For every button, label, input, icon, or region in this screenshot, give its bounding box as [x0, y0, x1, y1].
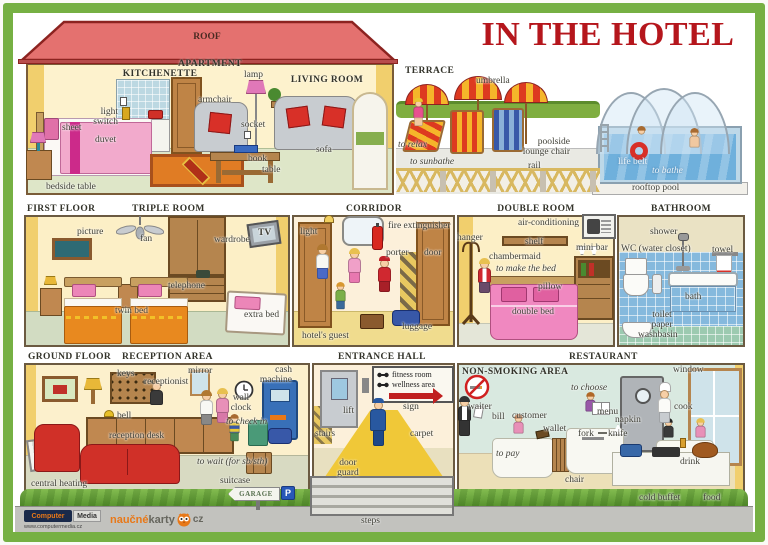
logo-karty-text: karty	[149, 514, 175, 526]
header-kitchenette: KITCHENETTE	[123, 69, 198, 79]
label-washbasin: washbasin	[638, 331, 678, 341]
arch-doorway	[352, 92, 388, 190]
twin-bed-1	[64, 282, 122, 344]
label-customer: customer	[512, 412, 547, 422]
shower-tap	[676, 266, 690, 271]
reception-picture	[42, 376, 78, 402]
toilet-bowl	[623, 274, 649, 296]
label-sofa: sofa	[316, 146, 332, 156]
poster-title: IN THE HOTEL	[468, 16, 748, 54]
bedside-lamp	[30, 132, 46, 143]
label-steps: steps	[361, 517, 380, 527]
label-wardrobe: wardrobe	[214, 236, 250, 246]
header-non-smoking: NON-SMOKING AREA	[462, 367, 568, 377]
guest-woman	[348, 248, 361, 283]
header-first-floor: FIRST FLOOR	[27, 204, 95, 214]
sofa-illustration	[274, 96, 358, 150]
door-guard-figure	[370, 398, 386, 446]
hotel-vocabulary-poster: IN THE HOTEL ROOF APARTMENT KITCHENETTE …	[0, 0, 768, 545]
logo-url: www.computermedia.cz	[24, 524, 82, 530]
label-shelf: shelf	[525, 238, 543, 248]
wellness-icon	[377, 382, 389, 388]
rail-illustration	[396, 168, 600, 192]
label-waiter: waiter	[468, 403, 492, 413]
kitchen-canister	[122, 107, 130, 120]
label-keys: keys	[117, 370, 134, 380]
toilet-tank	[625, 258, 647, 275]
sunbathing-guest	[413, 98, 423, 126]
media-logo-box: Media	[73, 510, 101, 522]
label-to-choose: to choose	[571, 384, 607, 394]
label-tv: TV	[258, 229, 271, 239]
label-knife: knife	[608, 430, 628, 440]
label-lift: lift	[343, 407, 354, 417]
computer-media-logo: Computer	[24, 510, 72, 522]
reception-lamp-base	[91, 390, 95, 404]
label-cold-buffet: cold buffet	[639, 494, 680, 504]
cooking-pot	[148, 110, 163, 119]
label-hotels-guest: hotel's guest	[302, 332, 349, 342]
pool-ladder	[600, 124, 609, 152]
bath-rim	[668, 272, 738, 287]
label-mini-bar: mini bar	[576, 244, 608, 254]
suitcase-corridor	[360, 314, 384, 329]
label-rooftop-pool: rooftop pool	[632, 184, 679, 194]
lift-illustration	[320, 370, 358, 428]
label-rail: rail	[528, 162, 541, 172]
label-wallet: wallet	[543, 425, 566, 435]
light-switch-icon	[120, 97, 127, 106]
owl-icon	[176, 512, 192, 527]
logo-computer-text: Computer	[31, 513, 64, 520]
label-cook: cook	[674, 403, 692, 413]
label-receptionist: receptionist	[144, 378, 188, 388]
bedside-table-illustration	[26, 150, 52, 180]
label-umbrella: umbrella	[476, 77, 510, 87]
coffee-table-top	[210, 152, 280, 161]
header-corridor: CORRIDOR	[346, 204, 402, 214]
porter-figure	[378, 256, 391, 292]
cook-figure	[658, 382, 671, 423]
label-lamp: lamp	[244, 71, 263, 81]
header-reception-area: RECEPTION AREA	[122, 352, 213, 362]
label-armchair: armchair	[198, 96, 232, 106]
lift-call-panel	[362, 378, 369, 393]
label-chambermaid: chambermaid	[489, 253, 541, 263]
label-picture: picture	[77, 228, 103, 238]
red-sofa	[80, 444, 180, 484]
label-fork: fork	[578, 430, 594, 440]
label-napkin: napkin	[615, 416, 641, 426]
label-suitcase: suitcase	[220, 477, 250, 487]
label-to-pay: to pay	[496, 450, 519, 460]
label-wall-clock: wall clock	[226, 394, 256, 414]
header-living-room: LIVING ROOM	[291, 75, 363, 85]
label-central-heating: central heating	[31, 480, 87, 490]
bath-side	[670, 286, 736, 312]
shower-head-icon	[678, 233, 689, 241]
label-to-bathe: to bathe	[652, 167, 683, 177]
label-telephone: telephone	[168, 282, 205, 292]
header-ground-floor: GROUND FLOOR	[28, 352, 111, 362]
label-bell: bell	[117, 412, 131, 422]
label-wc: WC (water closet)	[621, 245, 691, 255]
label-window: window	[673, 366, 704, 376]
lounge-chair-2	[450, 110, 484, 154]
fire-extinguisher-icon	[372, 226, 383, 250]
label-stairs: stairs	[315, 430, 335, 440]
label-bath: bath	[685, 293, 701, 303]
label-extra-bed: extra bed	[244, 311, 279, 321]
label-air-conditioning: air-conditioning	[518, 219, 579, 229]
label-porter: porter	[386, 249, 409, 259]
logo-tld-text: cz	[193, 514, 204, 525]
label-to-check-in: to check in	[226, 418, 267, 428]
label-food: food	[703, 494, 720, 504]
corridor-door-right	[416, 222, 450, 326]
swimmer-child	[637, 126, 646, 135]
coffee-table-leg	[216, 161, 221, 183]
label-drink: drink	[680, 458, 700, 468]
chambermaid-figure	[478, 258, 491, 293]
steps-illustration	[310, 476, 454, 516]
header-apartment: APARTMENT	[178, 59, 242, 69]
roast-food	[692, 442, 718, 458]
wardrobe-illustration	[168, 216, 226, 276]
label-hanger: hanger	[457, 234, 483, 244]
label-fire-extinguisher: fire extinguisher	[388, 222, 452, 232]
label-table: table	[262, 166, 280, 176]
label-socket: socket	[241, 121, 265, 131]
label-toilet-paper: toilet paper	[644, 311, 680, 331]
label-pillow: pillow	[538, 283, 562, 293]
label-cash-machine: cash machine	[248, 366, 292, 386]
label-roof: ROOF	[193, 33, 220, 43]
label-fan: fan	[140, 235, 152, 245]
buffet-tray	[652, 447, 680, 457]
triple-nightstand-lamp	[44, 276, 57, 285]
label-life-belt: life belt	[618, 158, 647, 168]
logo-media-text: Media	[77, 513, 97, 520]
sign-wellness-area: wellness area	[392, 380, 435, 389]
label-sign: sign	[403, 403, 419, 413]
bedside-lamp-base	[37, 143, 40, 151]
label-corridor-light: light	[300, 228, 317, 238]
parking-icon: P	[281, 486, 295, 500]
naucnekarty-logo: naučné karty cz	[110, 512, 203, 527]
apartment-pillow	[44, 118, 59, 140]
guest-boy	[335, 282, 345, 309]
label-to-make-the-bed: to make the bed	[496, 265, 556, 275]
header-triple-room: TRIPLE ROOM	[132, 204, 205, 214]
drink-glass	[680, 438, 686, 448]
label-duvet: duvet	[95, 136, 116, 146]
air-conditioning-unit	[582, 214, 616, 239]
garage-sign-pole	[256, 501, 260, 510]
red-armchair	[34, 424, 80, 472]
checkin-guest-man	[200, 390, 213, 425]
label-reception-desk: reception desk	[109, 432, 164, 442]
sign-fitness-room: fitness room	[392, 370, 432, 379]
guest-man	[316, 244, 329, 279]
header-restaurant: RESTAURANT	[569, 352, 638, 362]
book-illustration	[234, 145, 258, 153]
triple-nightstand-1	[40, 288, 62, 316]
label-bedside-table: bedside table	[46, 183, 96, 193]
label-light-switch: light switch	[76, 108, 118, 128]
label-luggage: luggage	[402, 323, 432, 333]
label-shower: shower	[650, 228, 677, 238]
header-entrance-hall: ENTRANCE HALL	[338, 352, 426, 362]
label-sheet: sheet	[62, 124, 82, 134]
label-towel: towel	[712, 246, 733, 256]
label-chair: chair	[565, 476, 584, 486]
label-book: book	[248, 155, 267, 165]
label-poolside-lounge-chair: poolside lounge chair	[512, 138, 570, 158]
blue-bag	[268, 428, 292, 444]
telephone-icon	[196, 270, 210, 278]
bell-icon	[104, 410, 114, 417]
label-door: door	[424, 249, 441, 259]
label-to-wait: to wait (for sb/sth)	[197, 458, 267, 468]
floor-lamp-shade	[246, 80, 266, 94]
header-terrace: TERRACE	[405, 66, 454, 76]
mini-bar-cabinet	[574, 256, 614, 320]
label-door-guard: door guard	[328, 459, 368, 479]
header-bathroom: BATHROOM	[651, 204, 711, 214]
fork-knife-connector	[598, 432, 607, 434]
parking-letter: P	[285, 488, 291, 498]
socket-icon	[244, 131, 251, 139]
swimmer-man	[689, 128, 699, 148]
label-bill: bill	[492, 413, 505, 423]
fitness-icon	[377, 372, 389, 378]
buffet-pot	[620, 444, 642, 457]
garage-sign-text: GARAGE	[239, 490, 273, 498]
garage-sign: GARAGE	[228, 487, 280, 501]
drinking-customer-woman	[695, 418, 705, 438]
label-double-bed: double bed	[512, 308, 554, 318]
label-mirror: mirror	[188, 367, 212, 377]
header-double-room: DOUBLE ROOM	[497, 204, 575, 214]
wall-light-icon	[324, 215, 334, 223]
picture-illustration	[52, 238, 92, 260]
reception-lamp	[84, 378, 102, 390]
logo-naucne-text: naučné	[110, 514, 149, 526]
label-to-sunbathe: to sunbathe	[410, 158, 454, 168]
label-carpet: carpet	[410, 430, 433, 440]
label-to-relax: to relax	[398, 141, 427, 151]
toilet-paper-stand	[652, 274, 662, 294]
label-twin-bed: twin bed	[115, 307, 148, 317]
